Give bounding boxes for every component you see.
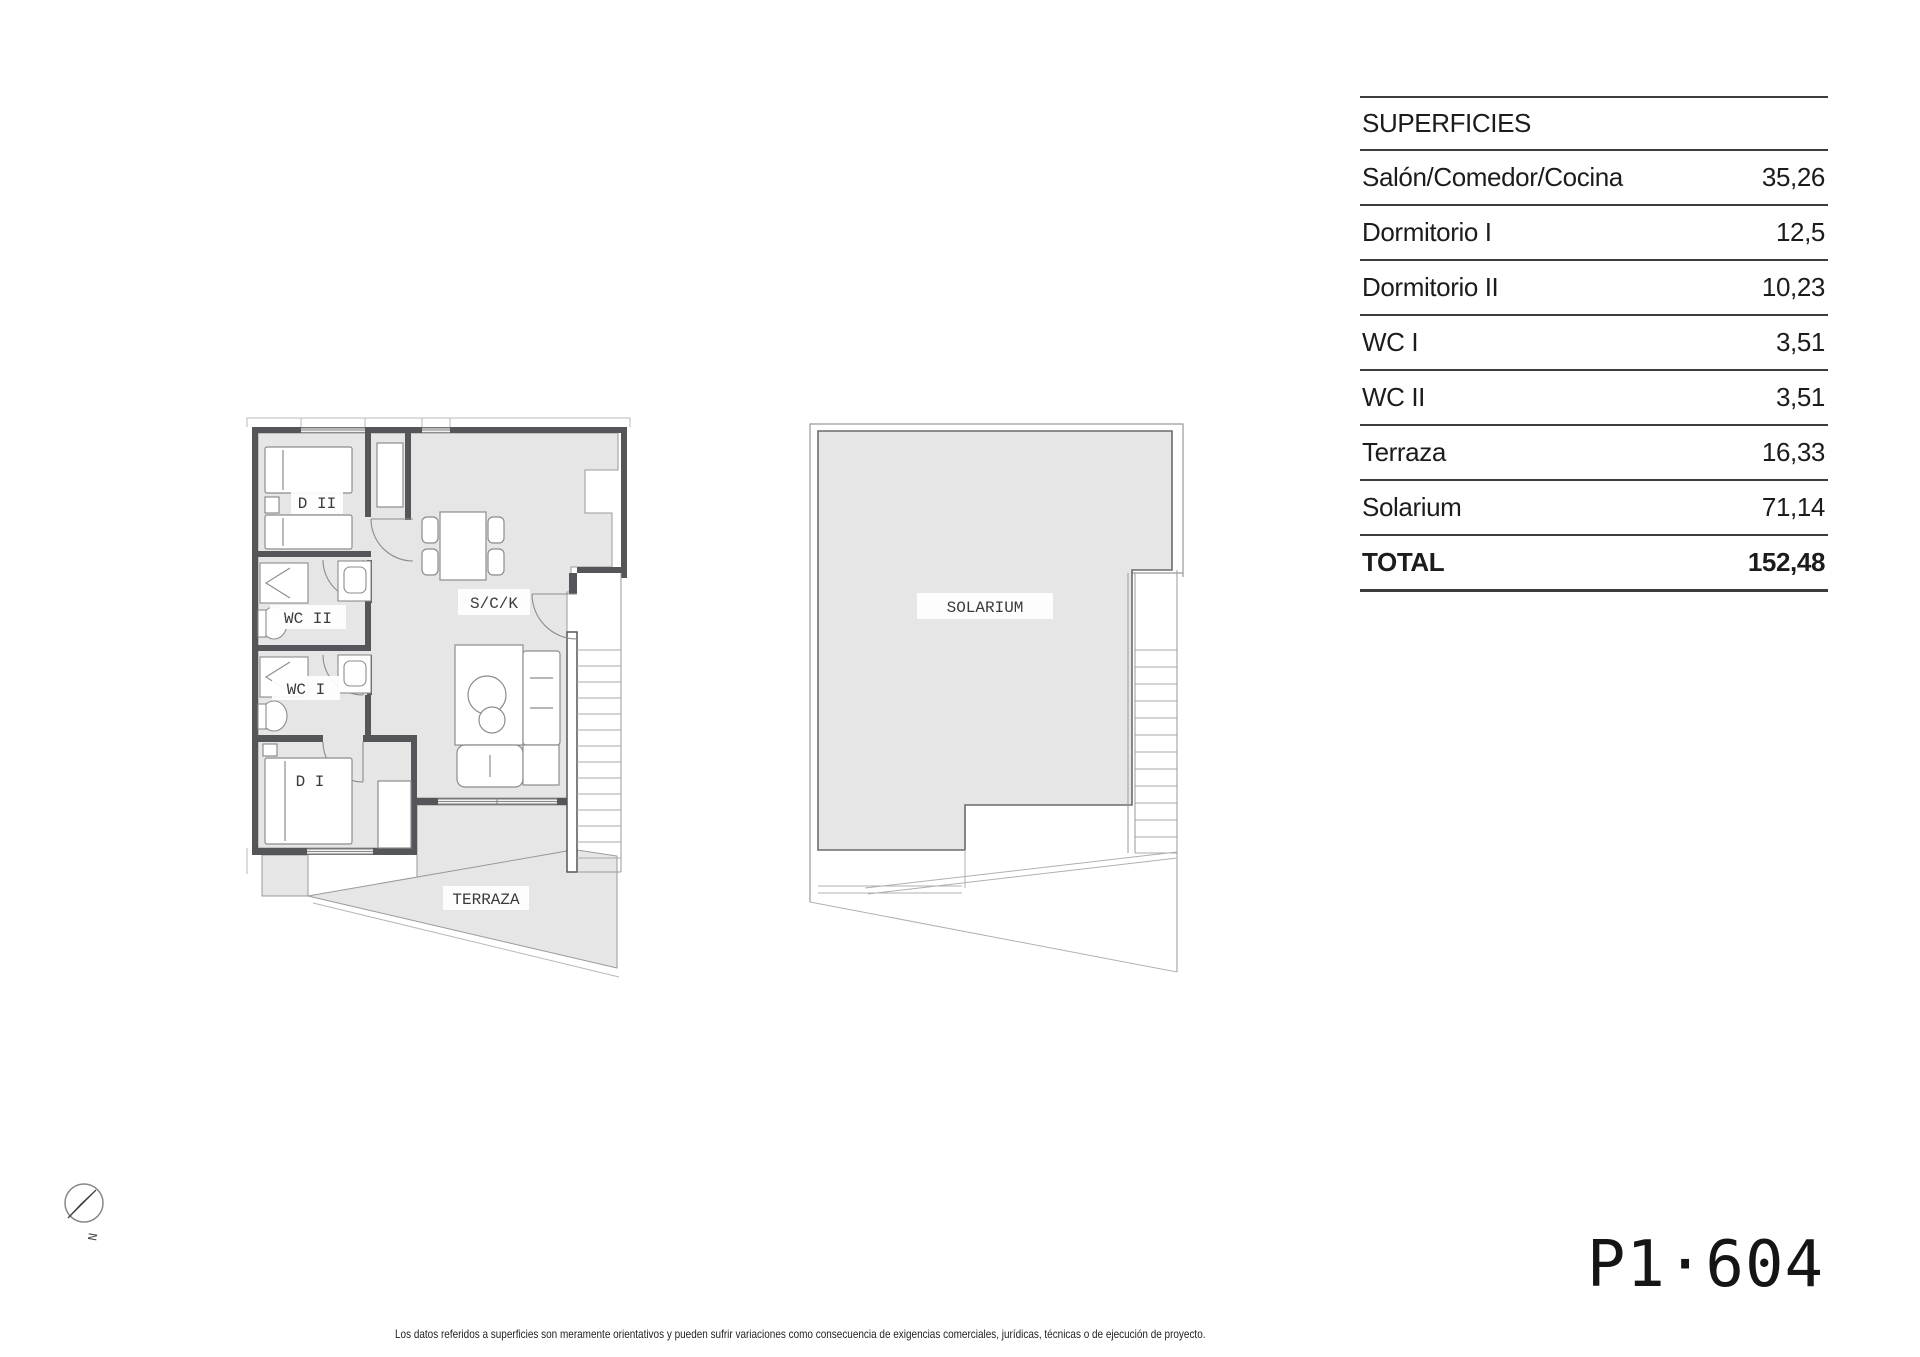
row-value: 3,51 bbox=[1776, 382, 1828, 413]
row-value: 10,23 bbox=[1762, 272, 1828, 303]
staircase bbox=[577, 573, 621, 872]
row-label: Solarium bbox=[1360, 492, 1461, 523]
solarium-staircase bbox=[1128, 570, 1177, 972]
total-label: TOTAL bbox=[1360, 547, 1444, 578]
row-value: 12,5 bbox=[1776, 217, 1828, 248]
table-row: Dormitorio II 10,23 bbox=[1360, 261, 1828, 316]
site-boundary-line bbox=[247, 418, 630, 427]
unit-code: P1·604 bbox=[1400, 1228, 1824, 1302]
table-row: Dormitorio I 12,5 bbox=[1360, 206, 1828, 261]
room-label-d2: D II bbox=[298, 495, 336, 513]
row-label: WC I bbox=[1360, 327, 1418, 358]
solarium-floor bbox=[818, 431, 1172, 850]
row-label: Dormitorio II bbox=[1360, 272, 1498, 303]
plan-sheet: SUPERFICIES Salón/Comedor/Cocina 35,26 D… bbox=[0, 0, 1920, 1357]
row-label: Dormitorio I bbox=[1360, 217, 1492, 248]
room-label-terraza: TERRAZA bbox=[452, 891, 520, 909]
surfaces-table-header: SUPERFICIES bbox=[1360, 98, 1828, 151]
bedroom1-furniture bbox=[263, 744, 352, 844]
lower-terrace-lines bbox=[810, 850, 1177, 972]
surfaces-table: SUPERFICIES Salón/Comedor/Cocina 35,26 D… bbox=[1360, 96, 1828, 592]
row-label: Salón/Comedor/Cocina bbox=[1360, 162, 1623, 193]
disclaimer-text: Los datos referidos a superficies son me… bbox=[395, 1327, 1206, 1341]
row-value: 3,51 bbox=[1776, 327, 1828, 358]
compass-north-label: N bbox=[84, 1232, 100, 1242]
apartment-floor-plan: D II WC II WC I D I S/C/K TERRAZA bbox=[240, 415, 640, 995]
north-compass-icon: N bbox=[48, 1168, 120, 1252]
terrace-floor-left bbox=[262, 855, 308, 896]
surfaces-table-title: SUPERFICIES bbox=[1360, 108, 1531, 139]
table-row: WC I 3,51 bbox=[1360, 316, 1828, 371]
room-label-solarium: SOLARIUM bbox=[947, 599, 1024, 617]
total-value: 152,48 bbox=[1748, 547, 1828, 578]
table-row: Terraza 16,33 bbox=[1360, 426, 1828, 481]
row-label: Terraza bbox=[1360, 437, 1446, 468]
room-label-d1: D I bbox=[296, 773, 325, 791]
row-value: 16,33 bbox=[1762, 437, 1828, 468]
stair-wall bbox=[567, 632, 577, 872]
kitchen-block bbox=[455, 645, 560, 787]
closet bbox=[378, 781, 411, 848]
table-row: Salón/Comedor/Cocina 35,26 bbox=[1360, 151, 1828, 206]
row-label: WC II bbox=[1360, 382, 1425, 413]
room-label-sck: S/C/K bbox=[470, 595, 518, 613]
wardrobe bbox=[377, 443, 403, 507]
table-row: Solarium 71,14 bbox=[1360, 481, 1828, 536]
room-label-wc2: WC II bbox=[284, 610, 332, 628]
table-row: WC II 3,51 bbox=[1360, 371, 1828, 426]
row-value: 35,26 bbox=[1762, 162, 1828, 193]
room-label-wc1: WC I bbox=[287, 681, 325, 699]
row-value: 71,14 bbox=[1762, 492, 1828, 523]
table-row-total: TOTAL 152,48 bbox=[1360, 536, 1828, 592]
solarium-floor-plan: SOLARIUM bbox=[790, 415, 1210, 995]
